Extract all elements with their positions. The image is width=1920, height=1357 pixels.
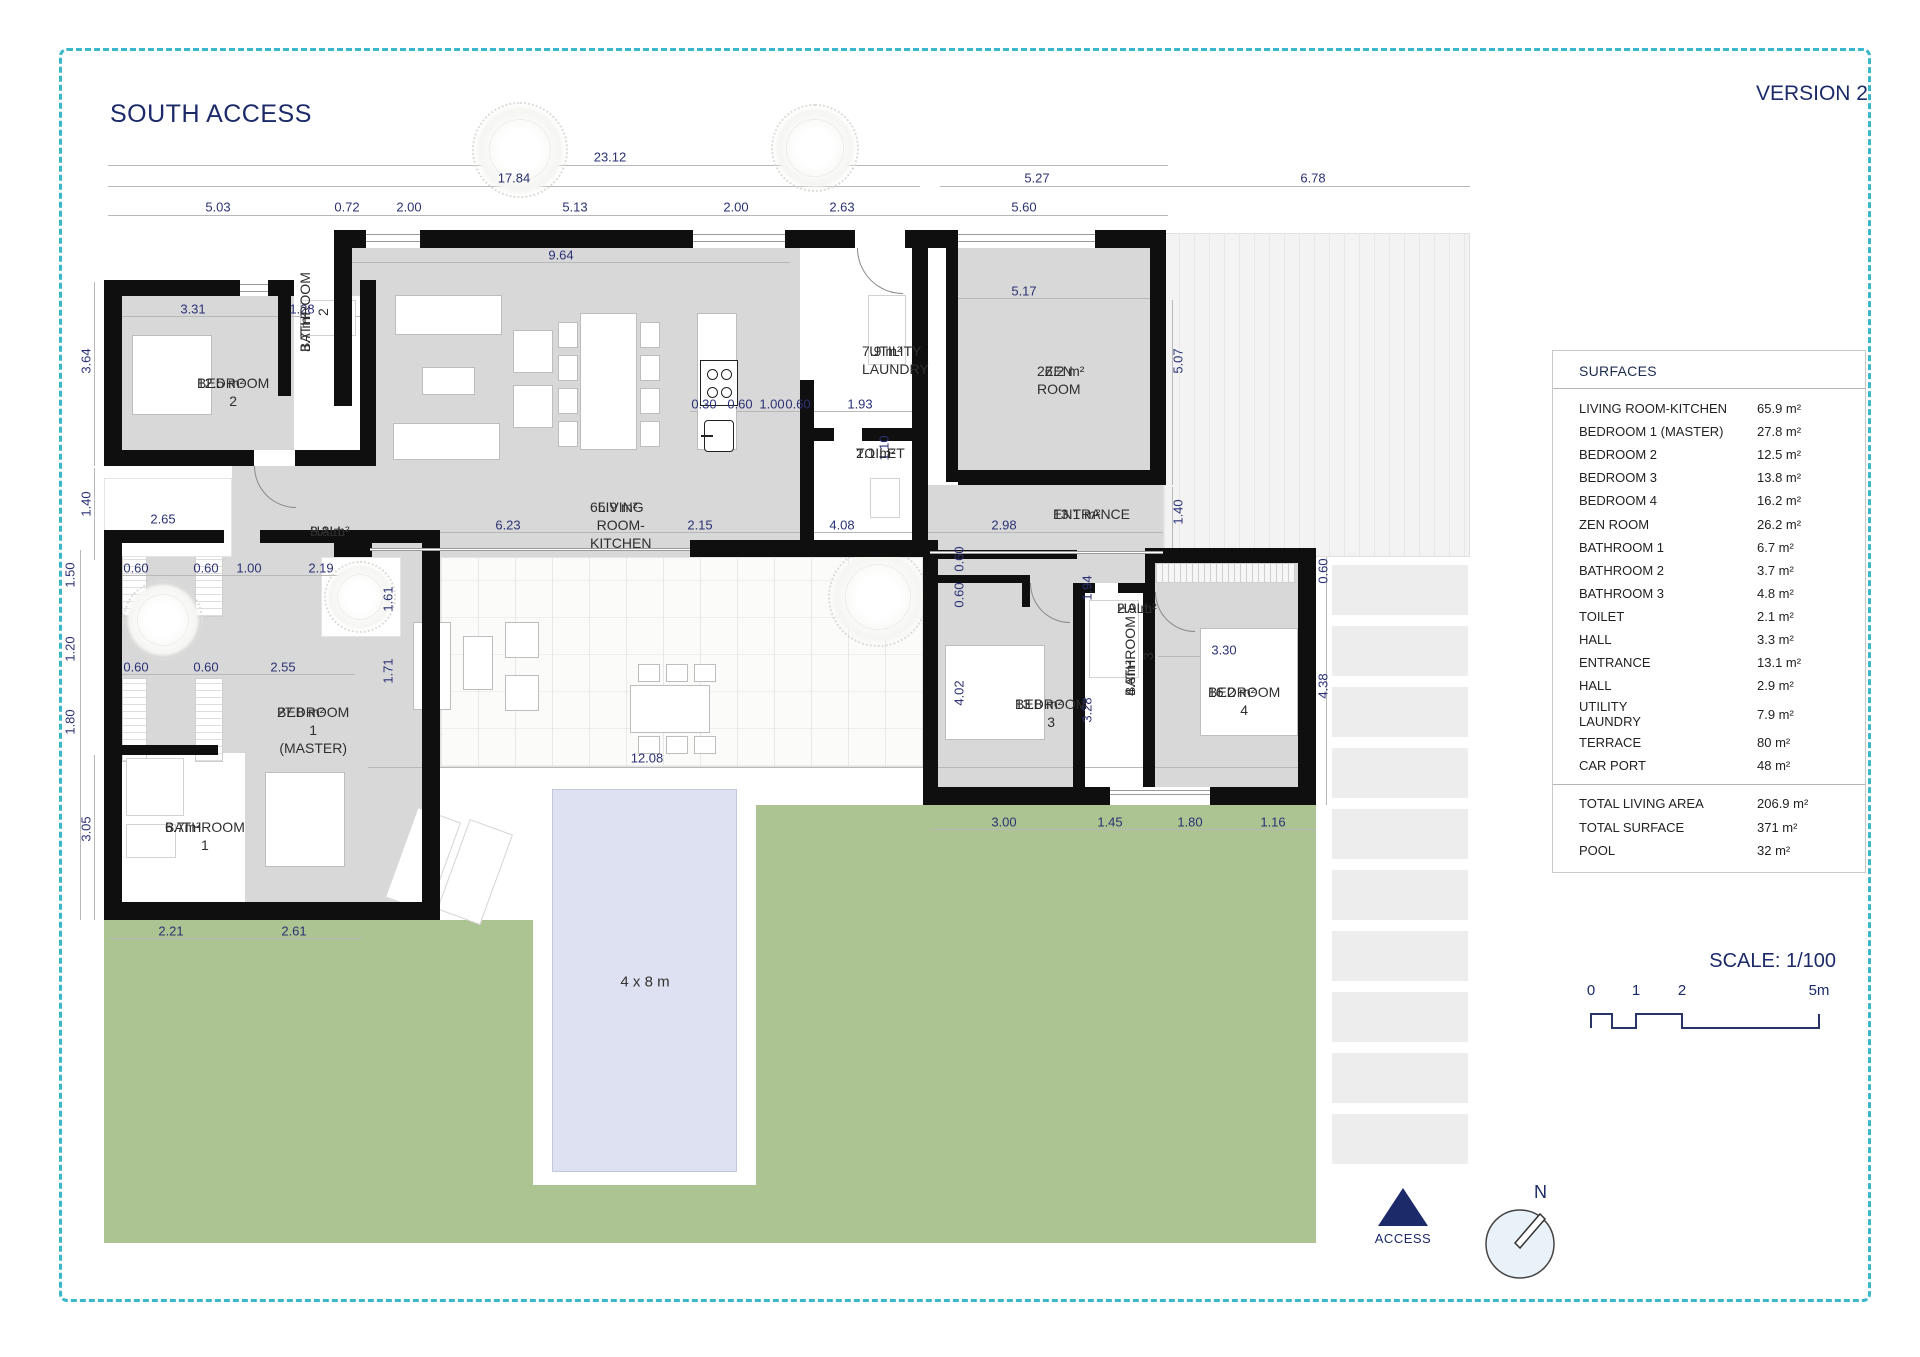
dimension-label: 0.60 — [123, 561, 148, 576]
room-area: 27.8 m² — [277, 703, 324, 721]
room-area: 26.2 m² — [1037, 362, 1084, 380]
dimension-label: 2.55 — [270, 660, 295, 675]
scale-tick: 2 — [1678, 982, 1686, 999]
dimension-label: 1.50 — [63, 562, 78, 587]
surface-value: 3.7 m² — [1757, 563, 1857, 578]
surface-value: 16.2 m² — [1757, 493, 1857, 508]
table-divider — [1553, 784, 1865, 785]
furniture — [580, 313, 637, 450]
scale-bar: 0125m — [1590, 982, 1840, 1032]
path-slab — [1332, 1053, 1468, 1103]
furniture — [393, 423, 500, 460]
dimension-line — [108, 215, 1168, 216]
room-area: 13.8 m² — [1015, 695, 1062, 713]
dimension-line — [94, 755, 95, 920]
dimension-label: 0.60 — [727, 397, 752, 412]
surface-name: CAR PORT — [1579, 758, 1757, 773]
compass-icon — [1478, 1196, 1568, 1286]
surface-row: POOL32 m² — [1553, 839, 1865, 862]
surfaces-rows: LIVING ROOM-KITCHEN65.9 m²BEDROOM 1 (MAS… — [1553, 397, 1865, 777]
dimension-label: 0.60 — [1316, 558, 1331, 583]
dimension-line — [930, 829, 1316, 830]
surface-name: HALL — [1579, 678, 1757, 693]
path-slab — [1332, 748, 1468, 798]
furniture — [666, 664, 688, 682]
wall — [1145, 548, 1316, 563]
surface-row: BEDROOM 416.2 m² — [1553, 489, 1865, 512]
dimension-label: 2.21 — [158, 924, 183, 939]
dimension-label: 1.93 — [847, 397, 872, 412]
path-slab — [1332, 687, 1468, 737]
wall — [862, 428, 928, 441]
dimension-label: 3.05 — [79, 816, 94, 841]
wall — [1073, 583, 1085, 787]
dimension-label: 5.13 — [562, 200, 587, 215]
room-area: 65.9 m² — [590, 498, 637, 516]
surface-name: BATHROOM 2 — [1579, 563, 1757, 578]
wall — [334, 230, 366, 248]
furniture — [422, 367, 475, 395]
surface-name: BATHROOM 3 — [1579, 586, 1757, 601]
dimension-line — [1172, 300, 1173, 485]
dimension-label: 5.60 — [1011, 200, 1036, 215]
window — [958, 234, 1095, 242]
wall — [104, 280, 122, 466]
room-floor — [949, 248, 1150, 470]
furniture — [558, 388, 578, 414]
dimension-line — [108, 938, 363, 939]
dimension-label: 1.71 — [381, 658, 396, 683]
dimension-label: 3.31 — [180, 302, 205, 317]
surface-value: 6.7 m² — [1757, 540, 1857, 555]
wall — [104, 902, 440, 920]
dimension-label: 3.30 — [1211, 643, 1236, 658]
tree-icon — [123, 580, 203, 660]
furniture — [640, 355, 660, 381]
surface-value: 4.8 m² — [1757, 586, 1857, 601]
surface-row: ZEN ROOM26.2 m² — [1553, 512, 1865, 535]
wall — [935, 575, 1022, 583]
furniture — [505, 622, 539, 658]
surface-name: TOTAL LIVING AREA — [1579, 796, 1757, 811]
dimension-label: 0.60 — [123, 660, 148, 675]
dimension-label: 1.61 — [381, 586, 396, 611]
room-area: 3.7 m² — [296, 312, 314, 352]
surface-row: TOILET2.1 m² — [1553, 605, 1865, 628]
wall — [905, 230, 958, 248]
dimension-label: 5.03 — [205, 200, 230, 215]
compass-north-label: N — [1534, 1182, 1547, 1203]
surface-name: UTILITY LAUNDRY — [1579, 699, 1757, 729]
wall — [958, 470, 1150, 485]
pool-size-label: 4 x 8 m — [620, 974, 669, 991]
wall — [422, 543, 440, 920]
tree-icon — [771, 104, 859, 192]
furniture — [395, 295, 502, 335]
room-area: 6.7m² — [165, 818, 201, 836]
surface-value: 32 m² — [1757, 843, 1857, 858]
surface-row: CAR PORT48 m² — [1553, 754, 1865, 777]
dimension-label: 0.60 — [952, 546, 967, 571]
dimension-label: 0.60 — [193, 660, 218, 675]
window — [1110, 790, 1210, 795]
dimension-line — [949, 298, 1150, 299]
wall — [1150, 230, 1166, 485]
furniture — [265, 772, 345, 867]
wall — [334, 540, 372, 557]
fixture — [870, 478, 900, 518]
dimension-label: 1.40 — [1171, 499, 1186, 524]
surface-name: BATHROOM 1 — [1579, 540, 1757, 555]
furniture — [666, 736, 688, 754]
room-area: 4.8m² — [1121, 660, 1139, 696]
floor-plan-page: SOUTH ACCESS VERSION 2 23.1217.845.030.7… — [0, 0, 1920, 1357]
dimension-label: 3.64 — [79, 348, 94, 373]
furniture — [694, 736, 716, 754]
surface-row: BATHROOM 16.7 m² — [1553, 536, 1865, 559]
scale-tick: 5m — [1809, 982, 1830, 999]
surface-value: 2.1 m² — [1757, 609, 1857, 624]
surface-row: HALL3.3 m² — [1553, 628, 1865, 651]
furniture — [630, 685, 710, 733]
dimension-line — [940, 186, 1470, 187]
scale-label: SCALE: 1/100 — [1656, 950, 1836, 973]
wall — [785, 230, 855, 248]
surface-name: HALL — [1579, 632, 1757, 647]
window — [240, 284, 268, 292]
surface-name: BEDROOM 4 — [1579, 493, 1757, 508]
surface-name: TOTAL SURFACE — [1579, 820, 1757, 835]
room-area: 2.9 m² — [1117, 599, 1157, 617]
wall — [1298, 557, 1316, 805]
surface-value: 13.1 m² — [1757, 655, 1857, 670]
wall — [104, 450, 254, 466]
wall — [334, 248, 352, 406]
grass-area — [756, 805, 1316, 1243]
furniture — [558, 421, 578, 447]
surface-value: 48 m² — [1757, 758, 1857, 773]
dimension-label: 1.00 — [236, 561, 261, 576]
surface-row: BATHROOM 23.7 m² — [1553, 559, 1865, 582]
dimension-line — [108, 165, 1168, 166]
dimension-label: 0.30 — [691, 397, 716, 412]
dimension-label: 9.64 — [548, 248, 573, 263]
scale-tick: 1 — [1632, 982, 1640, 999]
path-slab — [1332, 809, 1468, 859]
dimension-line — [352, 532, 1163, 533]
dimension-label: 2.15 — [687, 518, 712, 533]
tree-icon — [828, 547, 928, 647]
wall — [912, 248, 928, 557]
sink-icon — [704, 420, 734, 452]
room-area: 12.5 m² — [197, 374, 244, 392]
room-area: 3.3 m² — [310, 522, 350, 540]
wall — [122, 745, 218, 755]
dimension-label: 2.61 — [281, 924, 306, 939]
surface-name: ZEN ROOM — [1579, 517, 1757, 532]
furniture — [505, 675, 539, 711]
dimension-label: 1.40 — [79, 491, 94, 516]
dimension-line — [94, 282, 95, 466]
surface-row: TOTAL LIVING AREA206.9 m² — [1553, 792, 1865, 815]
surface-value: 80 m² — [1757, 735, 1857, 750]
wall — [923, 787, 1110, 805]
furniture — [513, 385, 553, 428]
surface-name: POOL — [1579, 843, 1757, 858]
surface-row: ENTRANCE13.1 m² — [1553, 651, 1865, 674]
scale-bar-glyph — [1590, 1002, 1840, 1030]
dimension-label: 23.12 — [594, 150, 627, 165]
path-slab — [1332, 992, 1468, 1042]
dimension-label: 2.00 — [723, 200, 748, 215]
path-slab — [1332, 931, 1468, 981]
surface-name: BEDROOM 2 — [1579, 447, 1757, 462]
dimension-label: 4.38 — [1316, 673, 1331, 698]
surface-name: TOILET — [1579, 609, 1757, 624]
furniture — [558, 322, 578, 348]
surfaces-table: SURFACES LIVING ROOM-KITCHEN65.9 m²BEDRO… — [1552, 350, 1866, 873]
wall — [360, 280, 376, 466]
dimension-label: 1.20 — [63, 636, 78, 661]
dimension-label: 0.60 — [952, 582, 967, 607]
dimension-line — [122, 674, 355, 675]
dimension-label: 4.02 — [952, 680, 967, 705]
dimension-line — [94, 468, 95, 560]
room-area: 2.1 m² — [856, 444, 896, 462]
furniture — [558, 355, 578, 381]
dimension-label: 3.00 — [991, 815, 1016, 830]
furniture — [640, 322, 660, 348]
furniture — [463, 636, 493, 690]
carport — [1163, 233, 1470, 557]
room-area: 16.2 m² — [1208, 683, 1255, 701]
scale-tick: 0 — [1587, 982, 1595, 999]
surface-value: 65.9 m² — [1757, 401, 1857, 416]
window — [366, 234, 420, 242]
surface-value: 26.2 m² — [1757, 517, 1857, 532]
wall — [104, 530, 224, 543]
dimension-label: 2.63 — [829, 200, 854, 215]
furniture — [638, 664, 660, 682]
surface-row: TERRACE80 m² — [1553, 731, 1865, 754]
surface-value: 13.8 m² — [1757, 470, 1857, 485]
surface-name: TERRACE — [1579, 735, 1757, 750]
path-slab — [1332, 565, 1468, 615]
wall — [1022, 575, 1030, 607]
path-slab — [1332, 870, 1468, 920]
surface-value: 3.3 m² — [1757, 632, 1857, 647]
surface-row: BEDROOM 212.5 m² — [1553, 443, 1865, 466]
dimension-label: 0.60 — [785, 397, 810, 412]
dimension-line — [80, 550, 81, 920]
surface-value: 27.8 m² — [1757, 424, 1857, 439]
dimension-label: 0.60 — [193, 561, 218, 576]
dimension-label: 4.08 — [829, 518, 854, 533]
surface-value: 371 m² — [1757, 820, 1857, 835]
dimension-label: 2.00 — [396, 200, 421, 215]
access-label: ACCESS — [1362, 1231, 1444, 1246]
dimension-label: 1.80 — [1177, 815, 1202, 830]
furniture — [640, 388, 660, 414]
dimension-label: 1.94 — [1080, 575, 1095, 600]
surface-name: LIVING ROOM-KITCHEN — [1579, 401, 1757, 416]
access-marker: ACCESS — [1362, 1188, 1444, 1246]
compass: N — [1478, 1196, 1568, 1286]
surface-name: BEDROOM 3 — [1579, 470, 1757, 485]
dimension-label: 12.08 — [631, 751, 664, 766]
wall — [268, 280, 294, 296]
dimension-label: 1.16 — [1260, 815, 1285, 830]
dimension-label: 0.72 — [334, 200, 359, 215]
dimension-line — [368, 767, 1316, 768]
dimension-label: 1.00 — [759, 397, 784, 412]
dimension-label: 17.84 — [498, 171, 531, 186]
wall — [104, 280, 240, 296]
dimension-label: 1.45 — [1097, 815, 1122, 830]
surface-name: BEDROOM 1 (MASTER) — [1579, 424, 1757, 439]
path-slab — [1332, 1114, 1468, 1164]
surface-row: UTILITY LAUNDRY7.9 m² — [1553, 697, 1865, 731]
wall — [1118, 583, 1155, 593]
wall — [800, 428, 834, 441]
dimension-label: 2.98 — [991, 518, 1016, 533]
dimension-label: 1.80 — [63, 709, 78, 734]
room-area: 7.9 m² — [862, 342, 902, 360]
dimension-label: 6.78 — [1300, 171, 1325, 186]
wall — [104, 530, 122, 920]
surface-value: 12.5 m² — [1757, 447, 1857, 462]
grass-area — [533, 1185, 756, 1243]
surface-row: BEDROOM 313.8 m² — [1553, 466, 1865, 489]
furniture — [640, 421, 660, 447]
access-triangle-icon — [1378, 1188, 1428, 1226]
surface-name: ENTRANCE — [1579, 655, 1757, 670]
furniture — [513, 330, 553, 373]
surface-value: 2.9 m² — [1757, 678, 1857, 693]
room-area: 13.1 m² — [1053, 505, 1100, 523]
grass-area — [104, 920, 533, 1243]
dimension-label: 2.19 — [308, 561, 333, 576]
wall — [420, 230, 693, 248]
surface-row: BEDROOM 1 (MASTER)27.8 m² — [1553, 420, 1865, 443]
surface-value: 7.9 m² — [1757, 707, 1857, 722]
dimension-label: 2.65 — [150, 512, 175, 527]
dimension-label: 5.07 — [1171, 348, 1186, 373]
dimension-label: 6.23 — [495, 518, 520, 533]
surfaces-totals: TOTAL LIVING AREA206.9 m²TOTAL SURFACE37… — [1553, 792, 1865, 861]
surface-row: BATHROOM 34.8 m² — [1553, 582, 1865, 605]
wall — [295, 450, 360, 466]
path-slab — [1332, 626, 1468, 676]
window-band — [1155, 563, 1295, 583]
surface-row: HALL2.9 m² — [1553, 674, 1865, 697]
surfaces-table-header: SURFACES — [1553, 351, 1865, 389]
window — [693, 234, 785, 242]
surface-row: LIVING ROOM-KITCHEN65.9 m² — [1553, 397, 1865, 420]
dimension-label: 5.27 — [1024, 171, 1049, 186]
dimension-label: 5.17 — [1011, 284, 1036, 299]
fixture — [126, 758, 184, 816]
surface-value: 206.9 m² — [1757, 796, 1857, 811]
surface-row: TOTAL SURFACE371 m² — [1553, 816, 1865, 839]
wall — [946, 248, 958, 482]
furniture — [694, 664, 716, 682]
